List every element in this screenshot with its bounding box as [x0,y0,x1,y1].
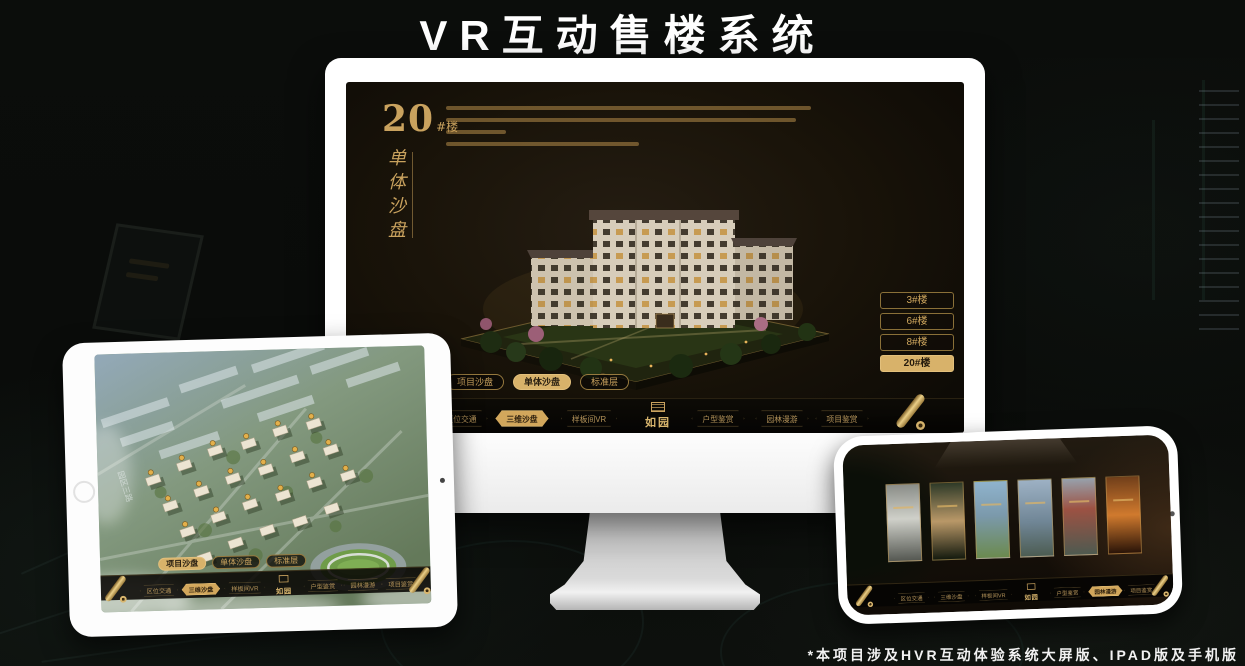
view-tab-group: 项目沙盘 单体沙盘 标准层 [446,374,629,390]
phone-bottom-nav: 区位交通 三维沙盘 样板间VR 如园 户型鉴赏 园林漫游 项目鉴赏 [847,573,1174,607]
scroll-handle-icon[interactable] [410,565,430,599]
tablet-camera-icon [440,478,445,483]
tablet-tab-standard-floor[interactable]: 标准层 [266,554,306,568]
promo-canvas: VR互动售楼系统 20#楼 单体沙盘 [0,0,1245,666]
bg-building-edge [1152,120,1155,300]
nav-item-showroom-vr[interactable]: 样板间VR [566,411,613,426]
scene-panel-lobby[interactable] [929,482,966,561]
scene-panel-gallery [886,475,1143,562]
scene-panel-building[interactable] [1017,478,1054,557]
interior-ceiling-beam [933,438,1077,469]
phone-device: 区位交通 三维沙盘 样板间VR 如园 户型鉴赏 园林漫游 项目鉴赏 [833,425,1183,625]
brand-logo[interactable]: 如园 [1024,583,1039,603]
nav-item-3d-sandbox[interactable]: 三维沙盘 [185,583,218,594]
brand-logo-text: 如园 [1024,594,1038,601]
scroll-handle-icon[interactable] [106,573,126,607]
brand-logo-icon [651,402,665,412]
scroll-handle-icon[interactable] [856,584,873,611]
nav-item-garden-roam[interactable]: 园林漫游 [760,411,804,426]
floor-button-20[interactable]: 20#楼 [880,355,954,372]
tablet-home-button[interactable] [73,481,96,504]
floor-button-3[interactable]: 3#楼 [880,292,954,309]
tablet-tab-single-sandbox[interactable]: 单体沙盘 [212,555,260,569]
tab-standard-floor[interactable]: 标准层 [580,374,629,390]
footnote: *本项目涉及HVR互动体验系统大屏版、IPAD版及手机版 [808,645,1239,665]
nav-item-garden-roam[interactable]: 园林漫游 [1091,586,1120,596]
nav-item-garden-roam[interactable]: 园林漫游 [347,579,380,590]
floor-button-8[interactable]: 8#楼 [880,334,954,351]
floor-button-group: 3#楼 6#楼 8#楼 20#楼 [880,292,956,376]
section-title-vertical: 单体沙盘 [382,148,408,244]
phone-screen: 区位交通 三维沙盘 样板间VR 如园 户型鉴赏 园林漫游 项目鉴赏 [842,434,1174,615]
tablet-device: 园区三路 项目沙盘 单体沙盘 标准层 区位交通 三维沙盘 [62,333,458,638]
nav-item-unit-gallery[interactable]: 户型鉴赏 [307,580,340,591]
scene-panel-garden[interactable] [973,480,1010,559]
tablet-ui-overlay: 项目沙盘 单体沙盘 标准层 区位交通 三维沙盘 样板间VR 如园 户型鉴赏 园林… [100,533,432,612]
tab-project-sandbox[interactable]: 项目沙盘 [446,374,504,390]
scroll-handle-icon[interactable] [898,391,924,433]
nav-item-showroom-vr[interactable]: 样板间VR [227,582,262,594]
brand-logo-icon [1027,583,1036,590]
nav-item-3d-sandbox[interactable]: 三维沙盘 [937,591,966,601]
section-title-rule [412,152,413,238]
scene-panel-courtyard[interactable] [886,483,923,562]
nav-item-location-traffic[interactable]: 区位交通 [897,593,926,603]
building-render [431,154,861,394]
brand-logo[interactable]: 如园 [276,575,293,598]
brand-logo-text: 如园 [276,588,292,596]
nav-item-unit-gallery[interactable]: 户型鉴赏 [696,411,740,426]
brand-logo-text: 如园 [645,416,671,429]
page-title: VR互动售楼系统 [0,2,1245,63]
nav-item-project-gallery[interactable]: 项目鉴赏 [820,411,864,426]
tablet-view-tab-group: 项目沙盘 单体沙盘 标准层 [158,554,306,571]
nav-item-3d-sandbox[interactable]: 三维沙盘 [500,411,544,426]
tablet-tab-project-sandbox[interactable]: 项目沙盘 [158,557,206,571]
floor-button-6[interactable]: 6#楼 [880,313,954,330]
scroll-handle-icon[interactable] [1152,573,1169,600]
nav-item-showroom-vr[interactable]: 样板间VR [978,590,1009,600]
nav-item-location-traffic[interactable]: 区位交通 [143,585,176,596]
building-number: 20 [382,98,434,140]
brand-logo-icon [279,575,289,582]
nav-item-unit-gallery[interactable]: 户型鉴赏 [1053,587,1082,597]
tab-single-sandbox[interactable]: 单体沙盘 [513,374,571,390]
description-text-lines [446,106,818,154]
tablet-bottom-nav: 区位交通 三维沙盘 样板间VR 如园 户型鉴赏 园林漫游 项目鉴赏 [100,566,431,600]
scene-panel-interior[interactable] [1105,475,1142,554]
tablet-screen: 园区三路 项目沙盘 单体沙盘 标准层 区位交通 三维沙盘 [94,345,431,612]
scene-panel-facade[interactable] [1061,477,1098,556]
bg-window-lights [1199,90,1239,330]
brand-logo[interactable]: 如园 [645,402,671,431]
